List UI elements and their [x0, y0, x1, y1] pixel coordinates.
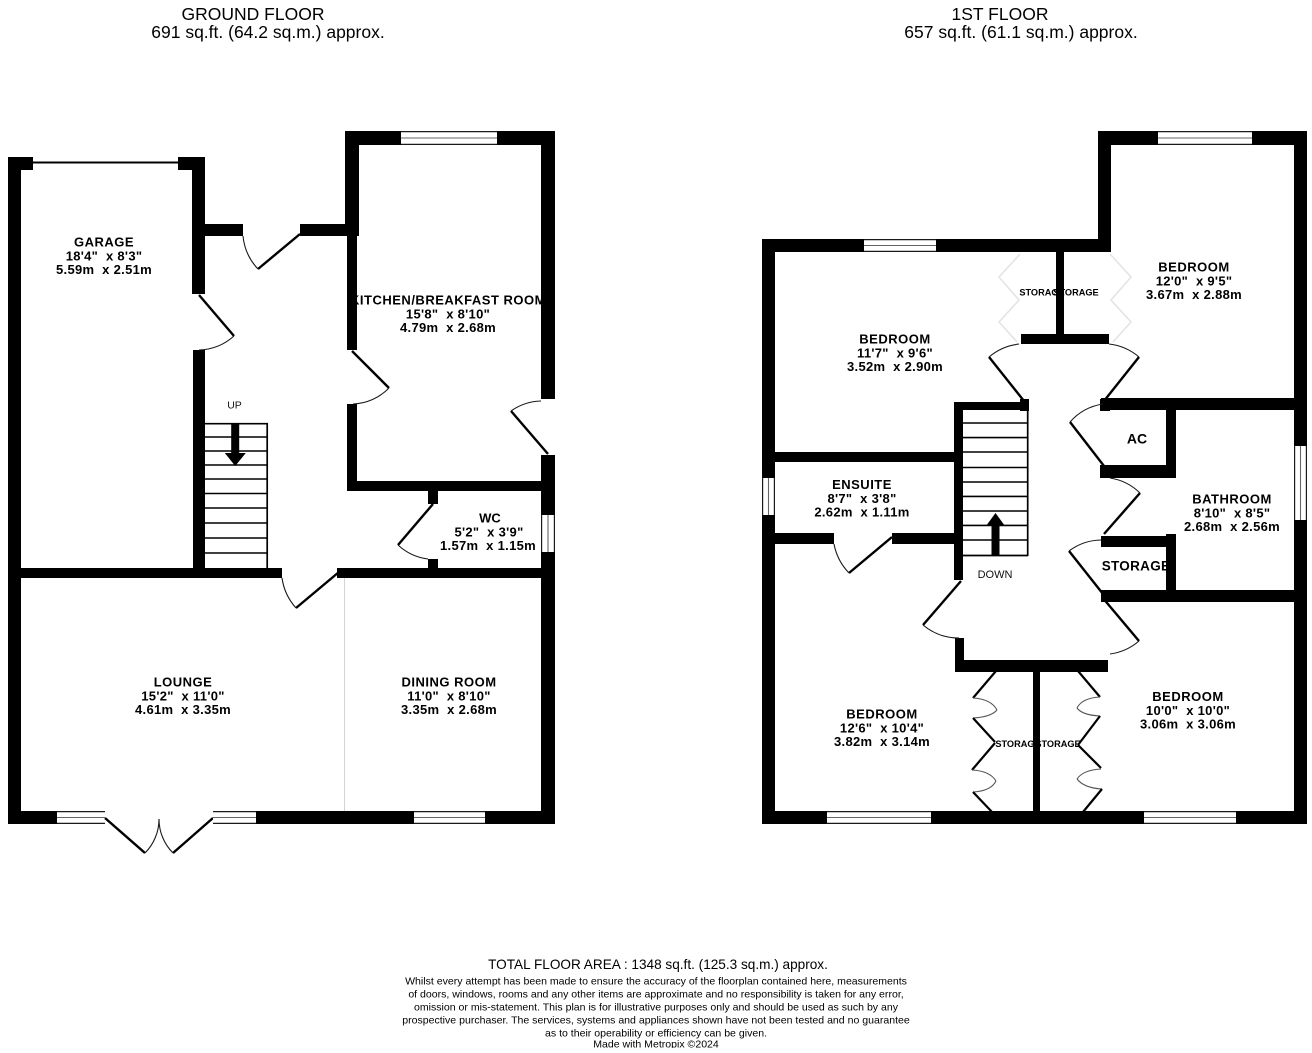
svg-text:Whilst every attempt has been: Whilst every attempt has been made to en…	[405, 976, 907, 988]
svg-text:DINING ROOM: DINING ROOM	[401, 675, 496, 690]
svg-text:BEDROOM: BEDROOM	[859, 332, 930, 347]
svg-text:2.62m x 1.11m: 2.62m x 1.11m	[814, 505, 909, 520]
svg-text:5'2" x 3'9": 5'2" x 3'9"	[454, 524, 523, 539]
svg-text:BEDROOM: BEDROOM	[1158, 260, 1229, 275]
svg-text:10'0" x 10'0": 10'0" x 10'0"	[1146, 703, 1230, 718]
svg-text:WC: WC	[479, 511, 501, 526]
svg-text:GARAGE: GARAGE	[74, 235, 134, 250]
svg-text:3.35m x 2.68m: 3.35m x 2.68m	[401, 702, 497, 717]
svg-text:12'6" x 10'4": 12'6" x 10'4"	[840, 720, 924, 735]
svg-text:1ST FLOOR: 1ST FLOOR	[952, 4, 1049, 24]
svg-text:3.52m x 2.90m: 3.52m x 2.90m	[847, 359, 943, 374]
svg-text:657 sq.ft. (61.1 sq.m.) approx: 657 sq.ft. (61.1 sq.m.) approx.	[904, 22, 1137, 42]
svg-text:5.59m x 2.51m: 5.59m x 2.51m	[56, 262, 152, 277]
svg-text:8'10" x 8'5": 8'10" x 8'5"	[1194, 505, 1271, 520]
svg-text:ENSUITE: ENSUITE	[832, 477, 892, 492]
svg-text:Made with Metropix ©2024: Made with Metropix ©2024	[593, 1039, 719, 1049]
svg-text:15'8" x 8'10": 15'8" x 8'10"	[406, 306, 490, 321]
svg-text:UP: UP	[227, 399, 242, 411]
svg-text:11'7" x 9'6": 11'7" x 9'6"	[857, 345, 933, 360]
svg-text:LOUNGE: LOUNGE	[154, 675, 213, 690]
svg-text:12'0" x 9'5": 12'0" x 9'5"	[1156, 273, 1233, 288]
svg-text:4.79m x 2.68m: 4.79m x 2.68m	[400, 320, 496, 335]
svg-text:4.61m x 3.35m: 4.61m x 3.35m	[135, 702, 231, 717]
svg-text:BATHROOM: BATHROOM	[1192, 492, 1272, 507]
svg-text:AC: AC	[1127, 431, 1147, 447]
svg-text:prospective purchaser. The ser: prospective purchaser. The services, sys…	[402, 1015, 910, 1027]
svg-text:omission or mis-statement. Thi: omission or mis-statement. This plan is …	[414, 1002, 899, 1014]
svg-text:3.06m x 3.06m: 3.06m x 3.06m	[1140, 717, 1236, 732]
svg-text:18'4" x 8'3": 18'4" x 8'3"	[66, 248, 143, 263]
svg-text:3.67m x 2.88m: 3.67m x 2.88m	[1146, 287, 1242, 302]
svg-text:2.68m x 2.56m: 2.68m x 2.56m	[1184, 519, 1280, 534]
svg-text:1.57m x 1.15m: 1.57m x 1.15m	[440, 538, 536, 553]
svg-text:STORAGE: STORAGE	[1035, 739, 1080, 749]
svg-text:691 sq.ft. (64.2 sq.m.) approx: 691 sq.ft. (64.2 sq.m.) approx.	[151, 22, 384, 42]
svg-text:BEDROOM: BEDROOM	[1152, 689, 1223, 704]
svg-text:of doors, windows, rooms and a: of doors, windows, rooms and any other i…	[408, 989, 903, 1001]
svg-text:GROUND FLOOR: GROUND FLOOR	[182, 4, 325, 24]
svg-text:STORAGE: STORAGE	[995, 739, 1040, 749]
svg-text:DOWN: DOWN	[978, 569, 1013, 581]
svg-text:8'7" x 3'8": 8'7" x 3'8"	[827, 491, 896, 506]
svg-text:15'2" x 11'0": 15'2" x 11'0"	[141, 688, 224, 703]
svg-text:STORAGE: STORAGE	[1053, 287, 1098, 297]
svg-text:KITCHEN/BREAKFAST ROOM: KITCHEN/BREAKFAST ROOM	[350, 293, 546, 308]
svg-text:TOTAL FLOOR AREA : 1348 sq.ft.: TOTAL FLOOR AREA : 1348 sq.ft. (125.3 sq…	[488, 957, 828, 972]
svg-text:3.82m x 3.14m: 3.82m x 3.14m	[834, 734, 930, 749]
svg-text:11'0" x 8'10": 11'0" x 8'10"	[407, 688, 490, 703]
svg-text:STORAGE: STORAGE	[1102, 559, 1171, 574]
svg-text:BEDROOM: BEDROOM	[846, 707, 917, 722]
